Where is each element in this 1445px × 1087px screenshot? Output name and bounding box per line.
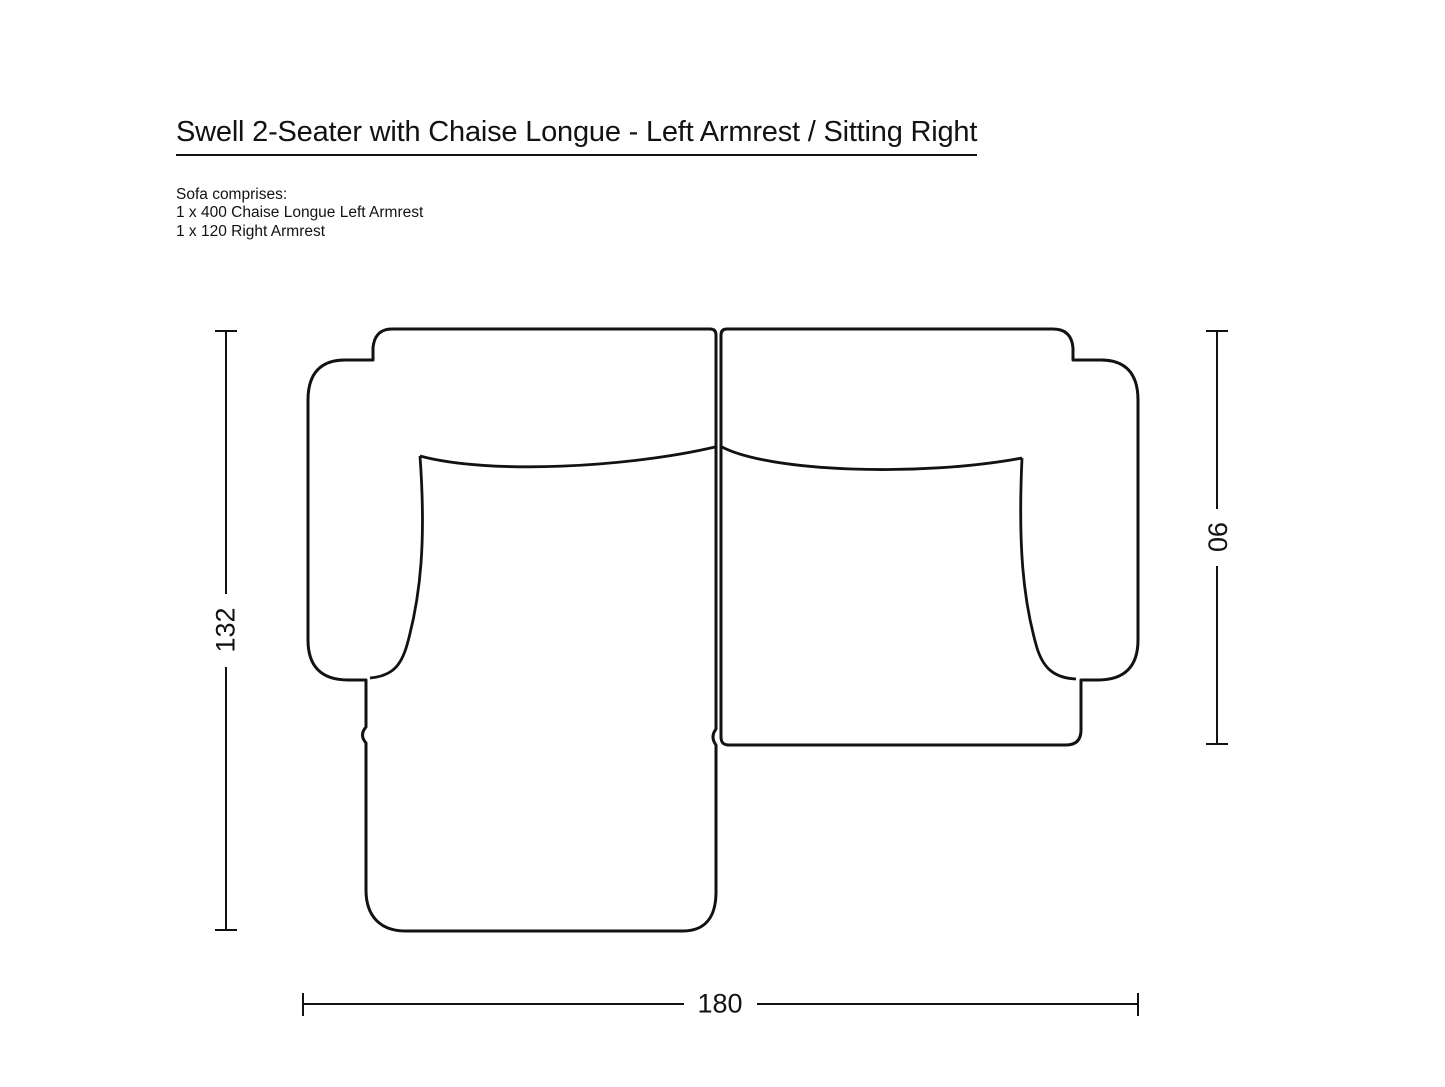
- left-cushion-line: [420, 447, 715, 467]
- left-chaise-module-outline: [308, 329, 716, 931]
- seat-depth-dimension-label: 90: [1202, 522, 1233, 552]
- left-armrest-inner-edge: [370, 456, 422, 678]
- total-width-dimension-label: 180: [697, 989, 742, 1020]
- right-cushion-line: [722, 447, 1022, 470]
- spec-sheet-page: Swell 2-Seater with Chaise Longue - Left…: [0, 0, 1445, 1087]
- total-depth-dimension-label: 132: [211, 607, 242, 652]
- right-seat-module-outline: [721, 329, 1138, 745]
- right-armrest-inner-edge: [1021, 458, 1076, 679]
